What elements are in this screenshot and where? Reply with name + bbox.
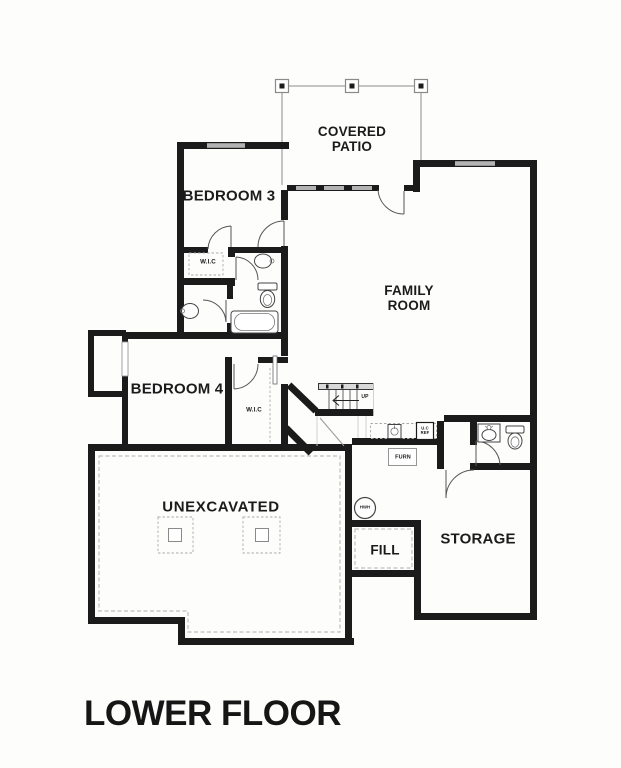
uc-ref-label: U.C REF [421, 427, 430, 436]
room-label-storage: STORAGE [440, 532, 515, 549]
column-pad-icon [243, 517, 280, 553]
toilet-icon [258, 283, 277, 308]
stairs-up-label: UP [361, 394, 368, 400]
column-pad-icon [158, 517, 193, 553]
patio-post-icon [415, 80, 428, 93]
floor-plan-drawing [0, 0, 621, 768]
stairs-up-arrow [333, 396, 359, 406]
patio-post-icon [276, 80, 289, 93]
floor-plan-page: COVERED PATIO BEDROOM 3 FAMILY ROOM BEDR… [0, 0, 621, 768]
toilet-icon [506, 426, 524, 449]
vanity-sink-icon [478, 424, 500, 442]
room-label-wic-upper: W.I.C [200, 259, 216, 266]
plan-title: LOWER FLOOR [84, 694, 341, 734]
room-label-covered-patio: COVERED PATIO [318, 124, 386, 154]
room-label-family-room: FAMILY ROOM [384, 283, 433, 313]
furnace-label: FURN [395, 454, 411, 460]
room-label-wic-lower: W.I.C [246, 407, 262, 414]
patio-post-icon [346, 80, 359, 93]
room-label-unexcavated: UNEXCAVATED [162, 500, 279, 517]
room-label-fill: FILL [370, 542, 399, 557]
bar-sink-icon [388, 425, 401, 439]
room-label-bedroom4: BEDROOM 4 [131, 382, 224, 399]
bathtub-icon [231, 311, 278, 333]
room-label-bedroom3: BEDROOM 3 [183, 189, 276, 206]
sink-icon [255, 254, 275, 268]
water-heater-label: HWH [360, 506, 370, 510]
